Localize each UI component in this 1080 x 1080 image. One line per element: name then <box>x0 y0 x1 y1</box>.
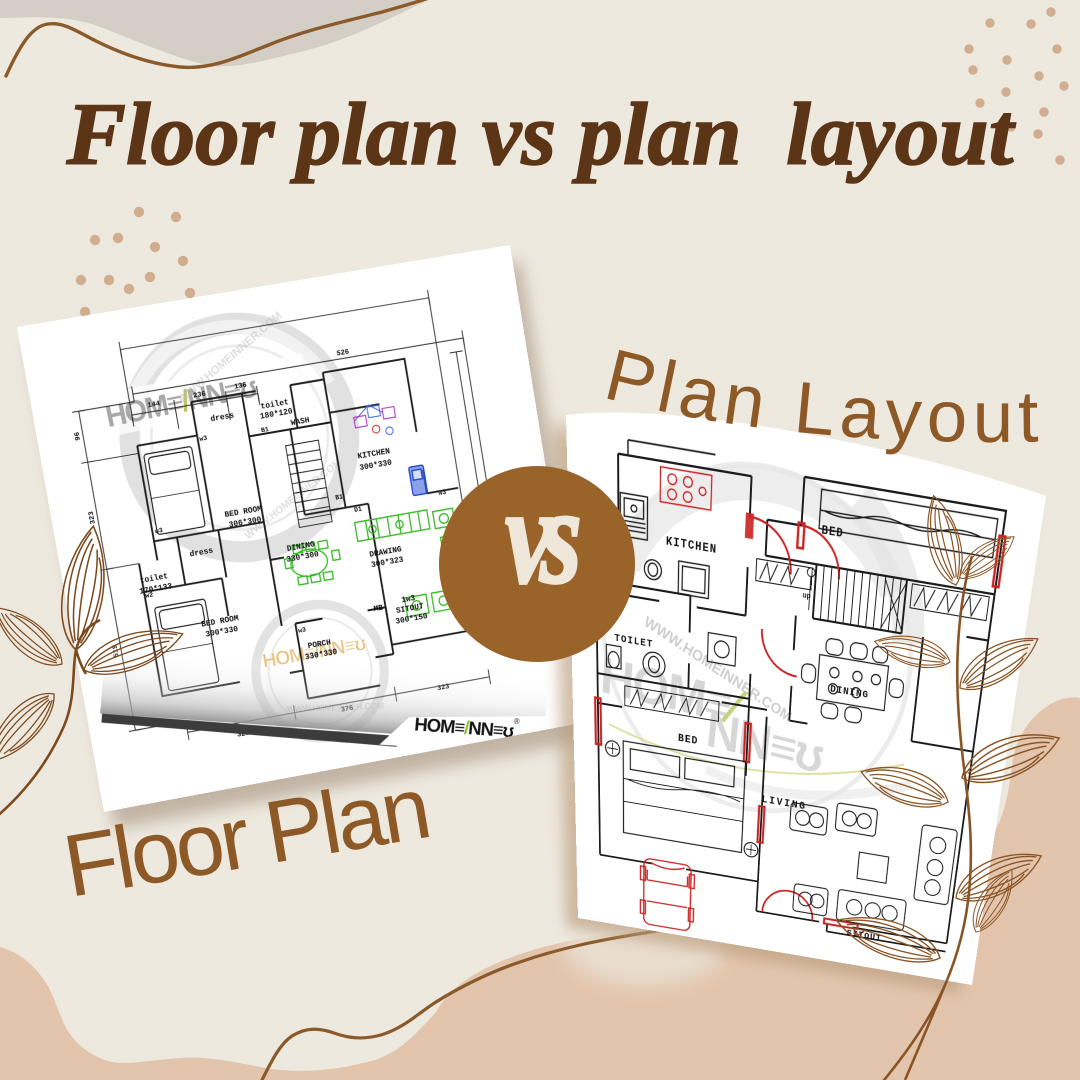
svg-text:®: ® <box>514 717 520 726</box>
svg-text:B1: B1 <box>335 493 344 502</box>
svg-text:96: 96 <box>74 431 83 441</box>
svg-text:w3: w3 <box>298 626 307 635</box>
svg-text:D1: D1 <box>354 506 363 515</box>
svg-text:w3: w3 <box>199 435 208 444</box>
svg-text:up: up <box>802 591 811 601</box>
svg-text:526: 526 <box>336 349 350 359</box>
svg-text:B1: B1 <box>261 426 270 435</box>
svg-text:w3: w3 <box>154 527 163 536</box>
svg-text:w2: w2 <box>145 591 154 600</box>
svg-text:MB: MB <box>373 604 384 614</box>
svg-text:w3: w3 <box>438 489 447 498</box>
